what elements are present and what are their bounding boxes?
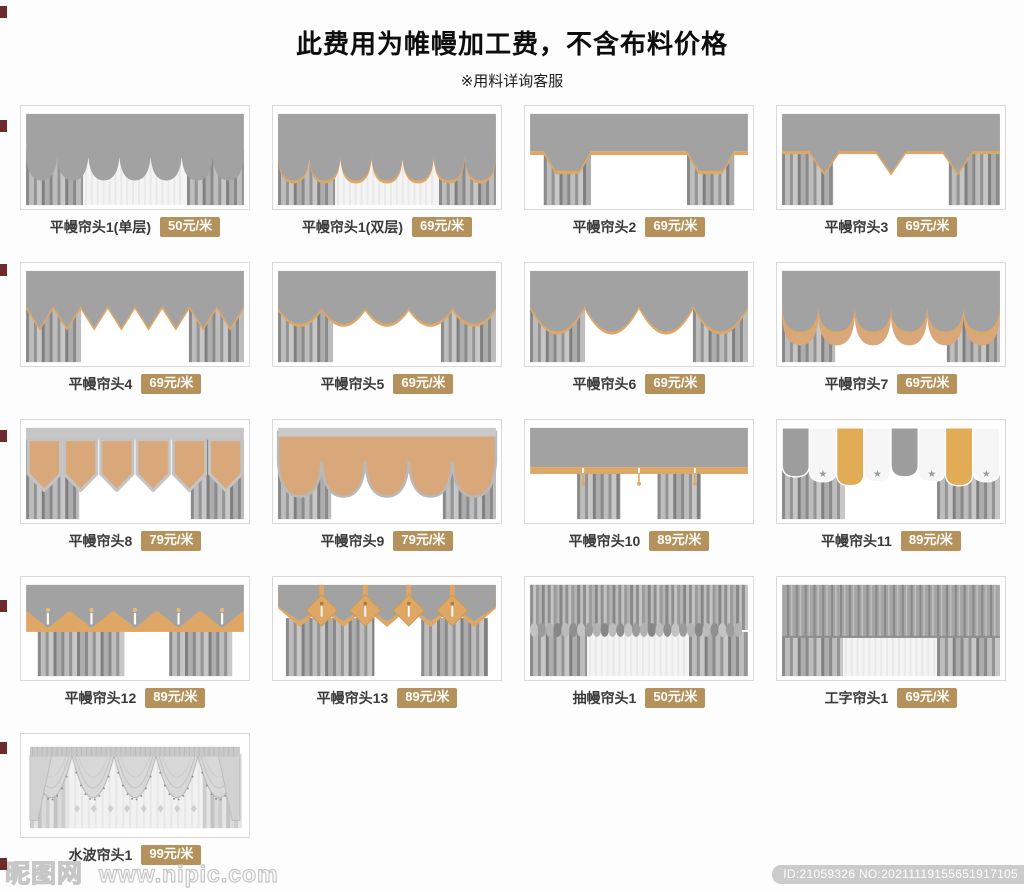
product-name: 平幔帘头8	[69, 531, 133, 551]
curtain-thumbnail	[20, 419, 250, 524]
product-caption: 平幔帘头1(双层) 69元/米	[272, 217, 502, 237]
product-caption: 平幔帘头10 89元/米	[524, 531, 754, 551]
curtain-thumbnail	[524, 105, 754, 210]
product-caption: 平幔帘头6 69元/米	[524, 374, 754, 394]
product-caption: 平幔帘头12 89元/米	[20, 688, 250, 708]
watermark: 昵图网 www.nipic.com	[5, 854, 279, 890]
product-name: 平幔帘头11	[821, 531, 892, 551]
product-caption: 平幔帘头1(单层) 50元/米	[20, 217, 250, 237]
svg-text:★: ★	[873, 469, 882, 480]
curtain-thumbnail	[272, 576, 502, 681]
price-badge: 69元/米	[412, 217, 472, 236]
page-title: 此费用为帷幔加工费，不含布料价格	[0, 0, 1024, 61]
product-name: 平幔帘头10	[569, 531, 641, 551]
product-caption: 平幔帘头4 69元/米	[20, 374, 250, 394]
product-card: 平幔帘头12 89元/米	[20, 576, 250, 733]
price-badge: 69元/米	[645, 374, 705, 393]
watermark-url: www.nipic.com	[99, 861, 279, 887]
curtain-thumbnail	[776, 262, 1006, 367]
product-name: 平幔帘头5	[321, 374, 385, 394]
page-subtitle: ※用料详询客服	[0, 70, 1024, 91]
product-caption: 平幔帘头8 79元/米	[20, 531, 250, 551]
product-caption: 平幔帘头11 89元/米	[776, 531, 1006, 551]
product-card: 平幔帘头5 69元/米	[272, 262, 502, 419]
product-card: 平幔帘头6 69元/米	[524, 262, 754, 419]
product-name: 平幔帘头1(单层)	[50, 217, 151, 237]
price-badge: 89元/米	[649, 531, 709, 550]
product-card: 平幔帘头2 69元/米	[524, 105, 754, 262]
curtain-thumbnail	[776, 576, 1006, 681]
product-card: 平幔帘头3 69元/米	[776, 105, 1006, 262]
product-name: 抽幔帘头1	[573, 688, 637, 708]
price-badge: 89元/米	[145, 688, 205, 707]
product-grid: 平幔帘头1(单层) 50元/米 平幔帘头1(双层) 69元/米 平幔帘头2 69…	[20, 105, 1024, 890]
curtain-thumbnail: ★★★★	[776, 419, 1006, 524]
product-caption: 平幔帘头3 69元/米	[776, 217, 1006, 237]
curtain-thumbnail	[776, 105, 1006, 210]
curtain-thumbnail	[524, 419, 754, 524]
curtain-thumbnail	[20, 105, 250, 210]
price-badge: 69元/米	[897, 217, 957, 236]
product-card: 平幔帘头10 89元/米	[524, 419, 754, 576]
curtain-thumbnail	[20, 733, 250, 838]
film-edge-mark	[0, 6, 7, 18]
price-badge: 69元/米	[393, 374, 453, 393]
svg-text:★: ★	[819, 469, 828, 480]
product-card: 平幔帘头1(单层) 50元/米	[20, 105, 250, 262]
film-edge-mark	[0, 264, 7, 276]
product-card: 平幔帘头9 79元/米	[272, 419, 502, 576]
price-badge: 69元/米	[897, 688, 957, 707]
product-name: 平幔帘头6	[573, 374, 637, 394]
price-badge: 79元/米	[393, 531, 453, 550]
price-badge: 89元/米	[397, 688, 457, 707]
image-id-label: ID:21059326 NO:20211119155651917105	[772, 865, 1024, 884]
film-edge-mark	[0, 120, 7, 132]
product-card: 平幔帘头7 69元/米	[776, 262, 1006, 419]
svg-text:★: ★	[927, 469, 936, 480]
price-badge: 50元/米	[645, 688, 705, 707]
product-name: 平幔帘头7	[825, 374, 889, 394]
curtain-thumbnail	[272, 105, 502, 210]
price-badge: 69元/米	[141, 374, 201, 393]
price-badge: 69元/米	[645, 217, 705, 236]
poster-page: 此费用为帷幔加工费，不含布料价格 ※用料详询客服 平幔帘头1(单层) 50元/米…	[0, 0, 1024, 892]
product-card: 平幔帘头8 79元/米	[20, 419, 250, 576]
product-caption: 平幔帘头7 69元/米	[776, 374, 1006, 394]
curtain-thumbnail	[272, 419, 502, 524]
product-card: 工字帘头1 69元/米	[776, 576, 1006, 733]
product-name: 平幔帘头9	[321, 531, 385, 551]
product-name: 平幔帘头12	[65, 688, 137, 708]
product-name: 平幔帘头3	[825, 217, 889, 237]
product-caption: 平幔帘头5 69元/米	[272, 374, 502, 394]
curtain-thumbnail	[20, 576, 250, 681]
film-edge-mark	[0, 742, 7, 754]
svg-text:★: ★	[982, 469, 991, 480]
product-name: 平幔帘头4	[69, 374, 133, 394]
film-edge-mark	[0, 600, 7, 612]
product-name: 工字帘头1	[825, 688, 889, 708]
product-caption: 平幔帘头13 89元/米	[272, 688, 502, 708]
film-edge-mark	[0, 858, 7, 870]
product-card: 抽幔帘头1 50元/米	[524, 576, 754, 733]
product-card: 平幔帘头13 89元/米	[272, 576, 502, 733]
film-edge-mark	[0, 430, 7, 442]
product-caption: 抽幔帘头1 50元/米	[524, 688, 754, 708]
price-badge: 69元/米	[897, 374, 957, 393]
product-caption: 平幔帘头9 79元/米	[272, 531, 502, 551]
price-badge: 79元/米	[141, 531, 201, 550]
product-name: 平幔帘头1(双层)	[302, 217, 403, 237]
curtain-thumbnail	[272, 262, 502, 367]
price-badge: 89元/米	[901, 531, 961, 550]
product-caption: 工字帘头1 69元/米	[776, 688, 1006, 708]
product-card: ★★★★ 平幔帘头11 89元/米	[776, 419, 1006, 576]
curtain-thumbnail	[524, 262, 754, 367]
product-name: 平幔帘头2	[573, 217, 637, 237]
price-badge: 50元/米	[160, 217, 220, 236]
product-card: 平幔帘头4 69元/米	[20, 262, 250, 419]
curtain-thumbnail	[524, 576, 754, 681]
curtain-thumbnail	[20, 262, 250, 367]
product-name: 平幔帘头13	[317, 688, 389, 708]
product-card: 平幔帘头1(双层) 69元/米	[272, 105, 502, 262]
watermark-logo: 昵图网	[5, 860, 83, 888]
product-caption: 平幔帘头2 69元/米	[524, 217, 754, 237]
